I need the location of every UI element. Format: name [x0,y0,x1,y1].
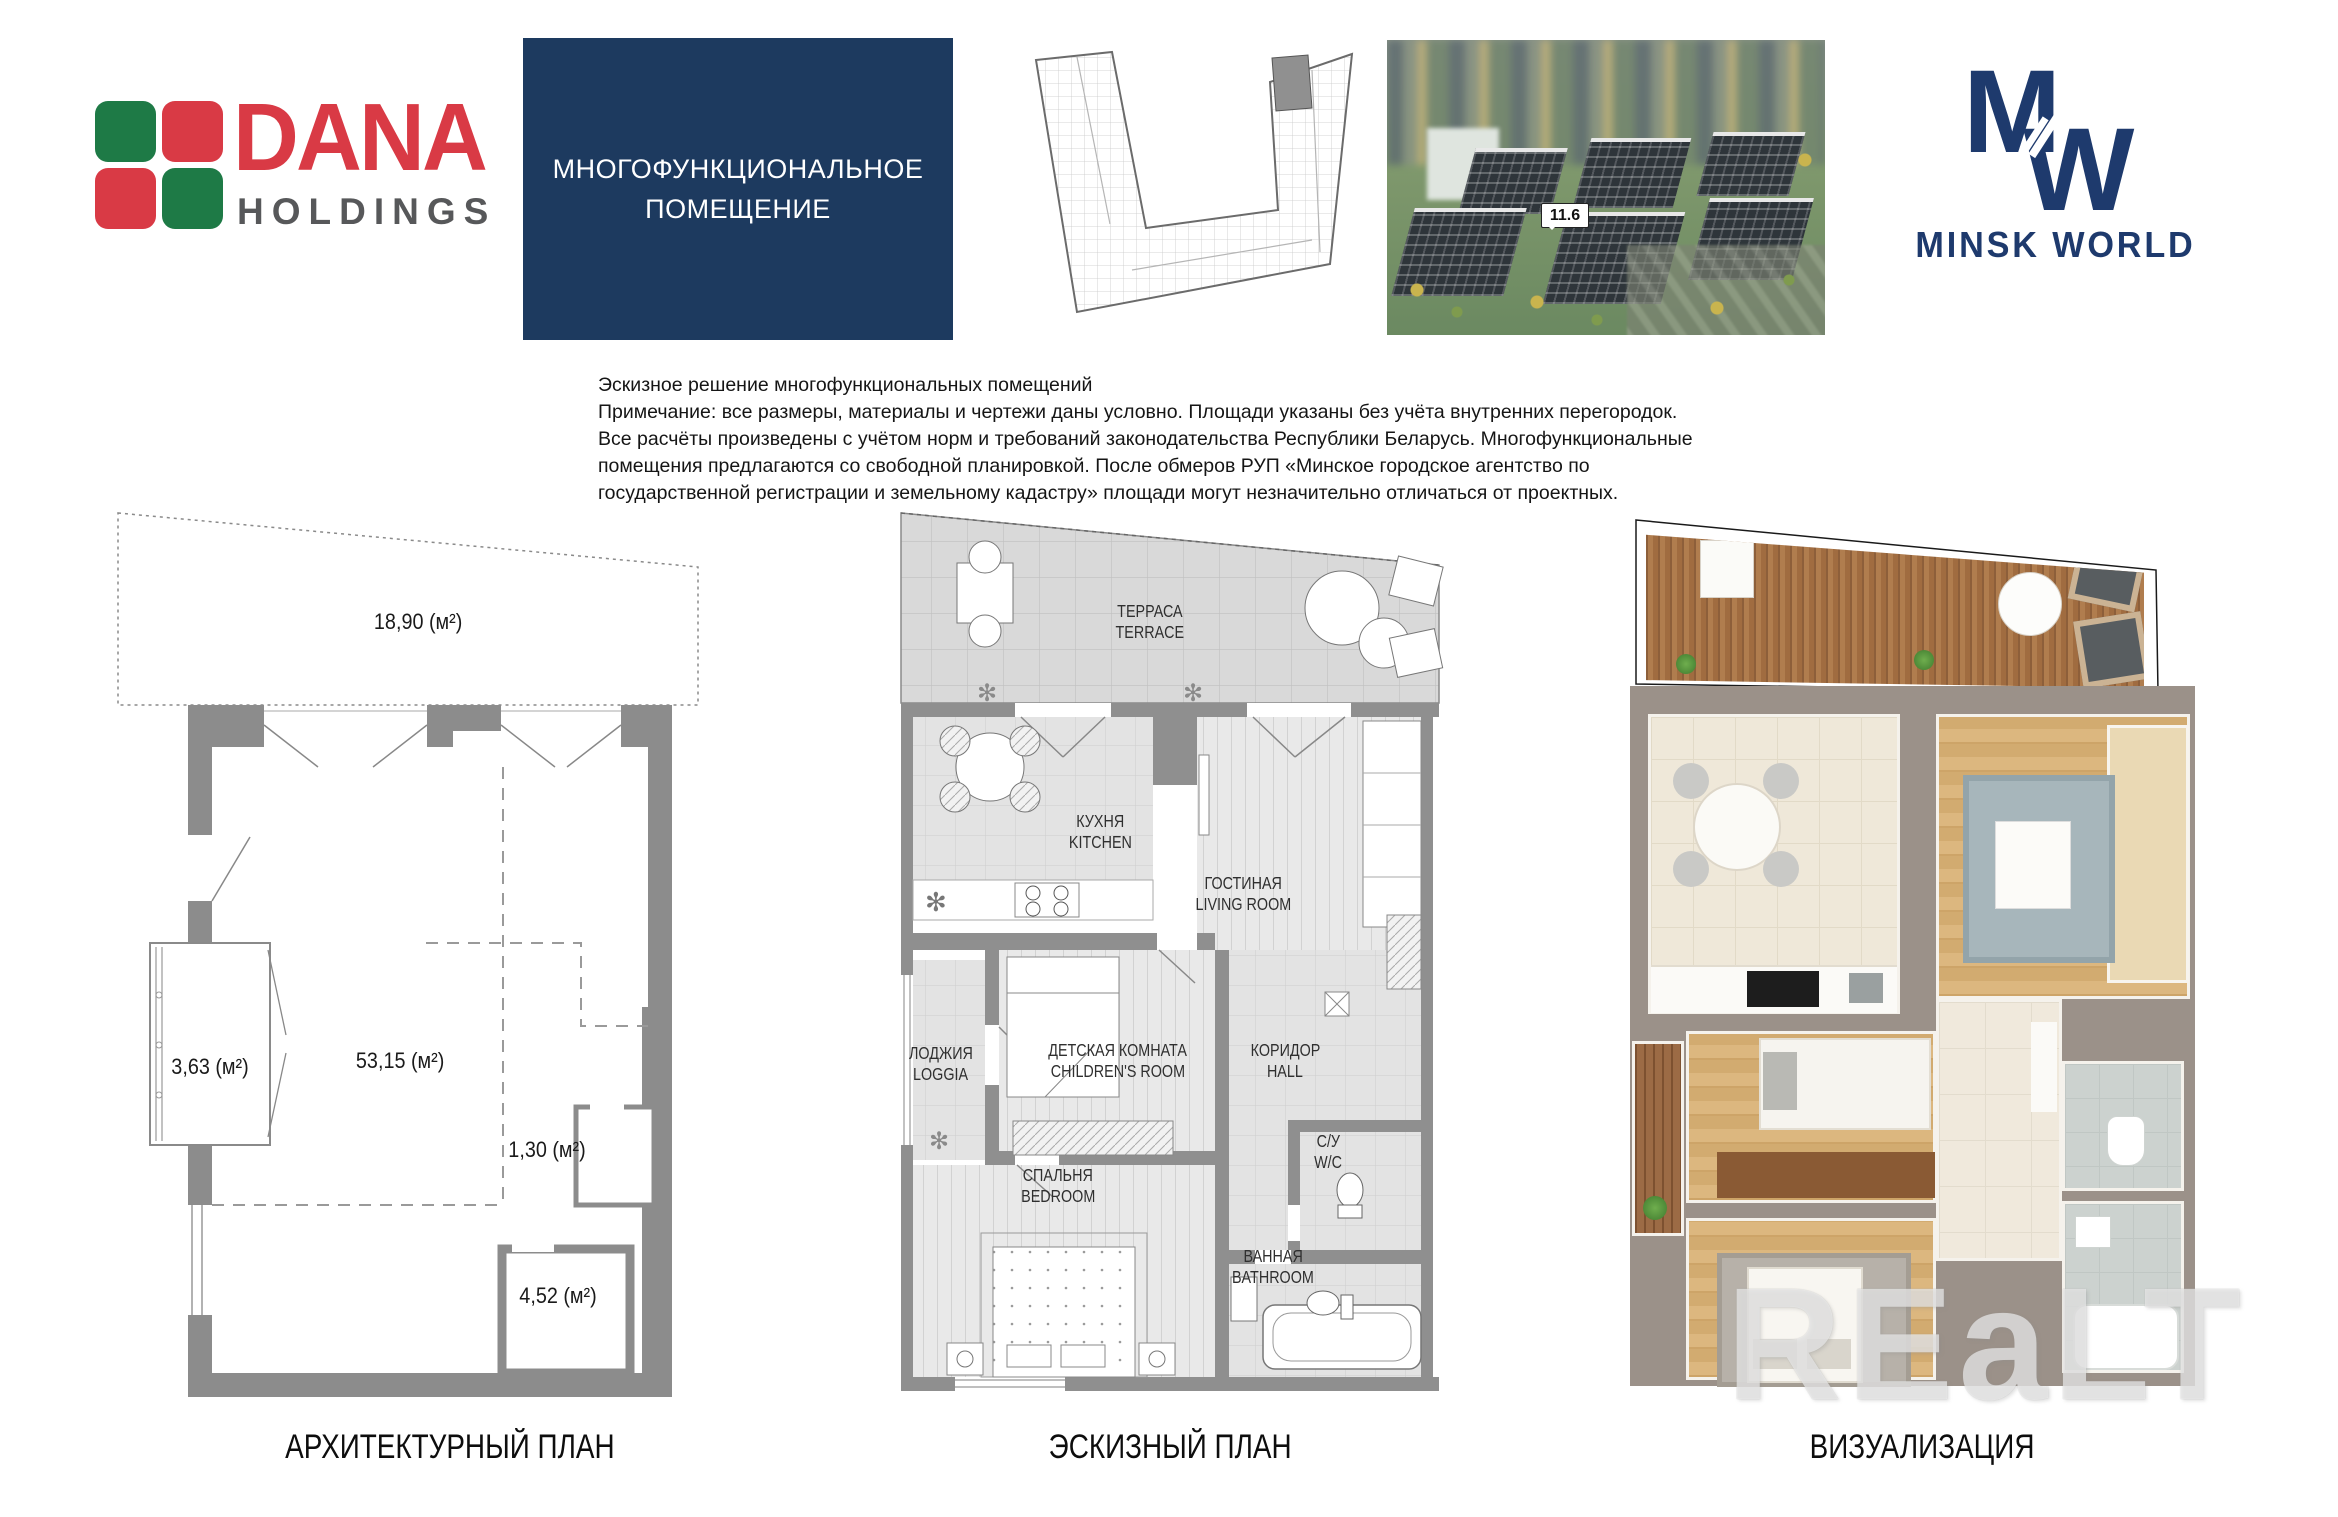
flower-icon: ✻ [929,1128,949,1155]
disclaimer-line: государственной регистрации и земельному… [598,480,1758,507]
loggia-label: ЛОДЖИЯ LOGGIA [895,1043,987,1085]
stove [1747,971,1819,1007]
disclaimer-line: Примечание: все размеры, материалы и чер… [598,399,1758,426]
chair [1673,851,1709,887]
bathroom-label: ВАННАЯ BATHROOM [1173,1246,1373,1288]
terrace-round-table [1998,572,2062,636]
wardrobe [2031,1022,2057,1112]
disclaimer-line: помещения предлагаются со свободной план… [598,453,1758,480]
mw-monogram-icon: M W [1963,52,2148,217]
bedroom-label: СПАЛЬНЯ BEDROOM [958,1165,1158,1207]
dana-holdings-logo: DANA HOLDINGS [95,95,515,245]
dana-square-red-icon [95,168,156,229]
highlighted-unit [1272,55,1312,111]
chair [1763,851,1799,887]
realt-watermark: REaLT [1726,1252,2246,1436]
building-floorplate-thumbnail [1032,44,1362,324]
terrace-label: ТЕРРАСА TERRACE [1050,601,1250,643]
chair [1763,763,1799,799]
sketch-plan-caption: ЭСКИЗНЫЙ ПЛАН [895,1428,1445,1467]
sofa [2107,725,2189,983]
flower-icon: ✻ [1183,680,1203,707]
kitchen-sink [1849,973,1883,1003]
viz-wc [2062,1061,2184,1191]
disclaimer-line: Эскизное решение многофункциональных пом… [598,372,1758,399]
architectural-plan-caption: АРХИТЕКТУРНЫЙ ПЛАН [150,1428,750,1467]
main-area-label: 53,15 (м²) [300,1048,500,1074]
viz-living-room [1936,714,2190,999]
flower-icon: ✻ [977,680,997,707]
childrens-room-label: ДЕТСКАЯ КОМНАТА CHILDREN'S ROOM [998,1040,1238,1082]
terrace-table [1700,540,1754,598]
plant [1643,1196,1667,1220]
building-number-badge: 11.6 [1541,203,1589,228]
viz-loggia [1632,1041,1684,1236]
trees [1387,40,1825,335]
dana-squares-icon [95,101,225,231]
dana-brand-text: DANA [233,83,485,193]
terrace-area-label: 18,90 (м²) [268,609,568,635]
hall-label: КОРИДОР HALL [1225,1040,1345,1082]
dana-square-green-icon [95,101,156,162]
sketch-plan-panel: ✻ ✻ [895,505,1445,1395]
sink-icon: ✻ [925,887,947,917]
dana-square-green-icon [162,168,223,229]
toilet [2107,1116,2145,1166]
loggia-area-label: 3,63 (м²) [140,1054,280,1080]
bath-sink [2075,1216,2111,1248]
duct-area-label: 1,30 (м²) [467,1137,627,1163]
viz-hall [1936,999,2062,1261]
disclaimer-line: Все расчёты произведены с учётом норм и … [598,426,1758,453]
bath-area-label: 4,52 (м²) [478,1283,638,1309]
chair [1673,763,1709,799]
disclaimer-text: Эскизное решение многофункциональных пом… [598,372,1758,507]
brochure-page: DANA HOLDINGS МНОГОФУНКЦИОНАЛЬНОЕ ПОМЕЩЕ… [0,0,2338,1517]
dana-square-red-icon [162,101,223,162]
plant [1914,650,1934,670]
kitchen-label: КУХНЯ KITCHEN [1000,811,1200,853]
title-line-2: ПОМЕЩЕНИЕ [645,189,831,229]
viz-childrens-room [1686,1031,1936,1203]
minsk-world-wordmark: MINSK WORLD [1887,224,2224,266]
plant [1676,654,1696,674]
pillow [1763,1052,1797,1110]
architectural-plan-panel: 18,90 (м²) 3,63 (м²) 53,15 (м²) 1,30 (м²… [110,505,710,1445]
u-shaped-building-outline [1032,44,1362,324]
wc-label: С/У W/C [1288,1131,1368,1173]
wardrobe [1717,1152,1935,1198]
title-line-1: МНОГОФУНКЦИОНАЛЬНОЕ [553,149,924,189]
living-room-label: ГОСТИНАЯ LIVING ROOM [1143,873,1343,915]
minsk-world-logo: M W MINSK WORLD [1878,52,2233,314]
aerial-city-render: 11.6 [1387,40,1825,335]
dana-holdings-text: HOLDINGS [237,191,496,233]
lounge-chair [2073,611,2151,689]
viz-kitchen [1648,714,1900,1014]
unit-type-title-box: МНОГОФУНКЦИОНАЛЬНОЕ ПОМЕЩЕНИЕ [523,38,953,340]
coffee-table [1995,821,2071,909]
